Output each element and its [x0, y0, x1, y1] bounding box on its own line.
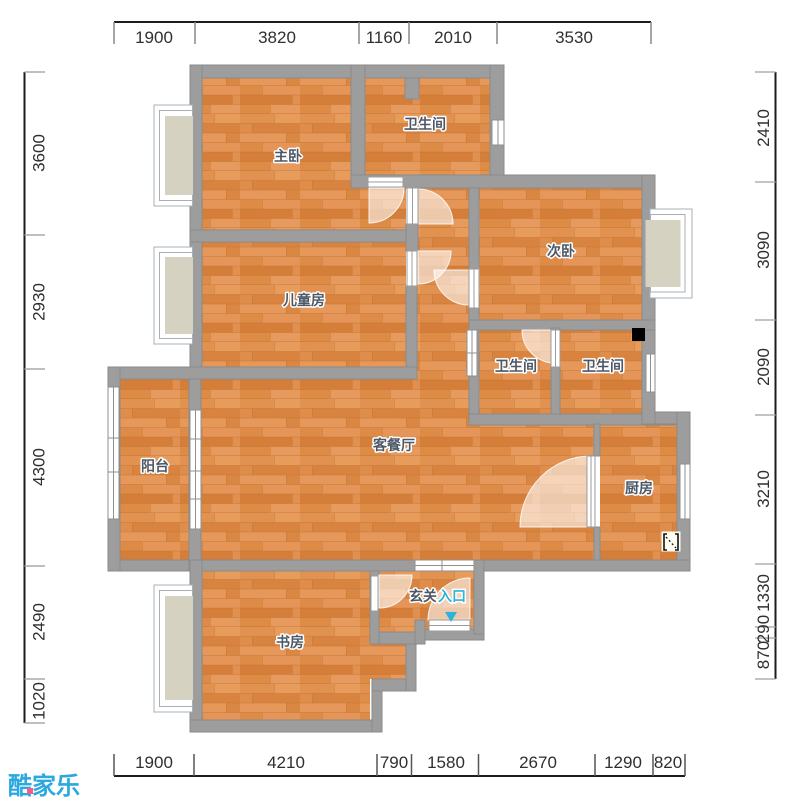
svg-text:1580: 1580: [427, 753, 465, 772]
svg-text:1160: 1160: [366, 28, 403, 47]
svg-text:790: 790: [380, 753, 408, 772]
svg-text:1020: 1020: [30, 682, 49, 720]
svg-text:1900: 1900: [135, 28, 173, 47]
svg-text:3820: 3820: [258, 28, 296, 47]
svg-text:酷家乐: 酷家乐: [8, 772, 80, 800]
svg-text:3090: 3090: [754, 231, 773, 269]
svg-text:次卧: 次卧: [547, 243, 575, 259]
svg-text:厨房: 厨房: [625, 480, 653, 496]
svg-text:290: 290: [754, 615, 773, 643]
svg-text:820: 820: [654, 753, 682, 772]
svg-text:主卧: 主卧: [274, 148, 302, 164]
svg-text:3600: 3600: [30, 134, 49, 172]
svg-text:4210: 4210: [267, 753, 305, 772]
svg-text:书房: 书房: [276, 634, 304, 650]
svg-text:870: 870: [754, 641, 773, 669]
svg-text:2490: 2490: [30, 603, 49, 641]
svg-text:卫生间: 卫生间: [404, 116, 446, 132]
svg-text:卫生间: 卫生间: [495, 358, 537, 374]
svg-text:卫生间: 卫生间: [582, 358, 624, 374]
svg-text:1330: 1330: [754, 574, 773, 612]
svg-text:2930: 2930: [30, 283, 49, 321]
svg-text:2010: 2010: [434, 28, 472, 47]
svg-text:客餐厅: 客餐厅: [372, 437, 415, 453]
svg-text:1290: 1290: [604, 753, 642, 772]
svg-text:阳台: 阳台: [141, 458, 169, 474]
svg-text:2670: 2670: [519, 753, 557, 772]
svg-text:玄关: 玄关: [409, 588, 437, 604]
svg-text:4300: 4300: [30, 448, 49, 486]
svg-text:2090: 2090: [754, 348, 773, 386]
svg-text:3210: 3210: [754, 470, 773, 508]
svg-text:1900: 1900: [135, 753, 173, 772]
svg-text:入口: 入口: [438, 588, 466, 604]
svg-text:3530: 3530: [555, 28, 593, 47]
svg-text:2410: 2410: [754, 109, 773, 147]
svg-text:儿童房: 儿童房: [282, 292, 325, 308]
